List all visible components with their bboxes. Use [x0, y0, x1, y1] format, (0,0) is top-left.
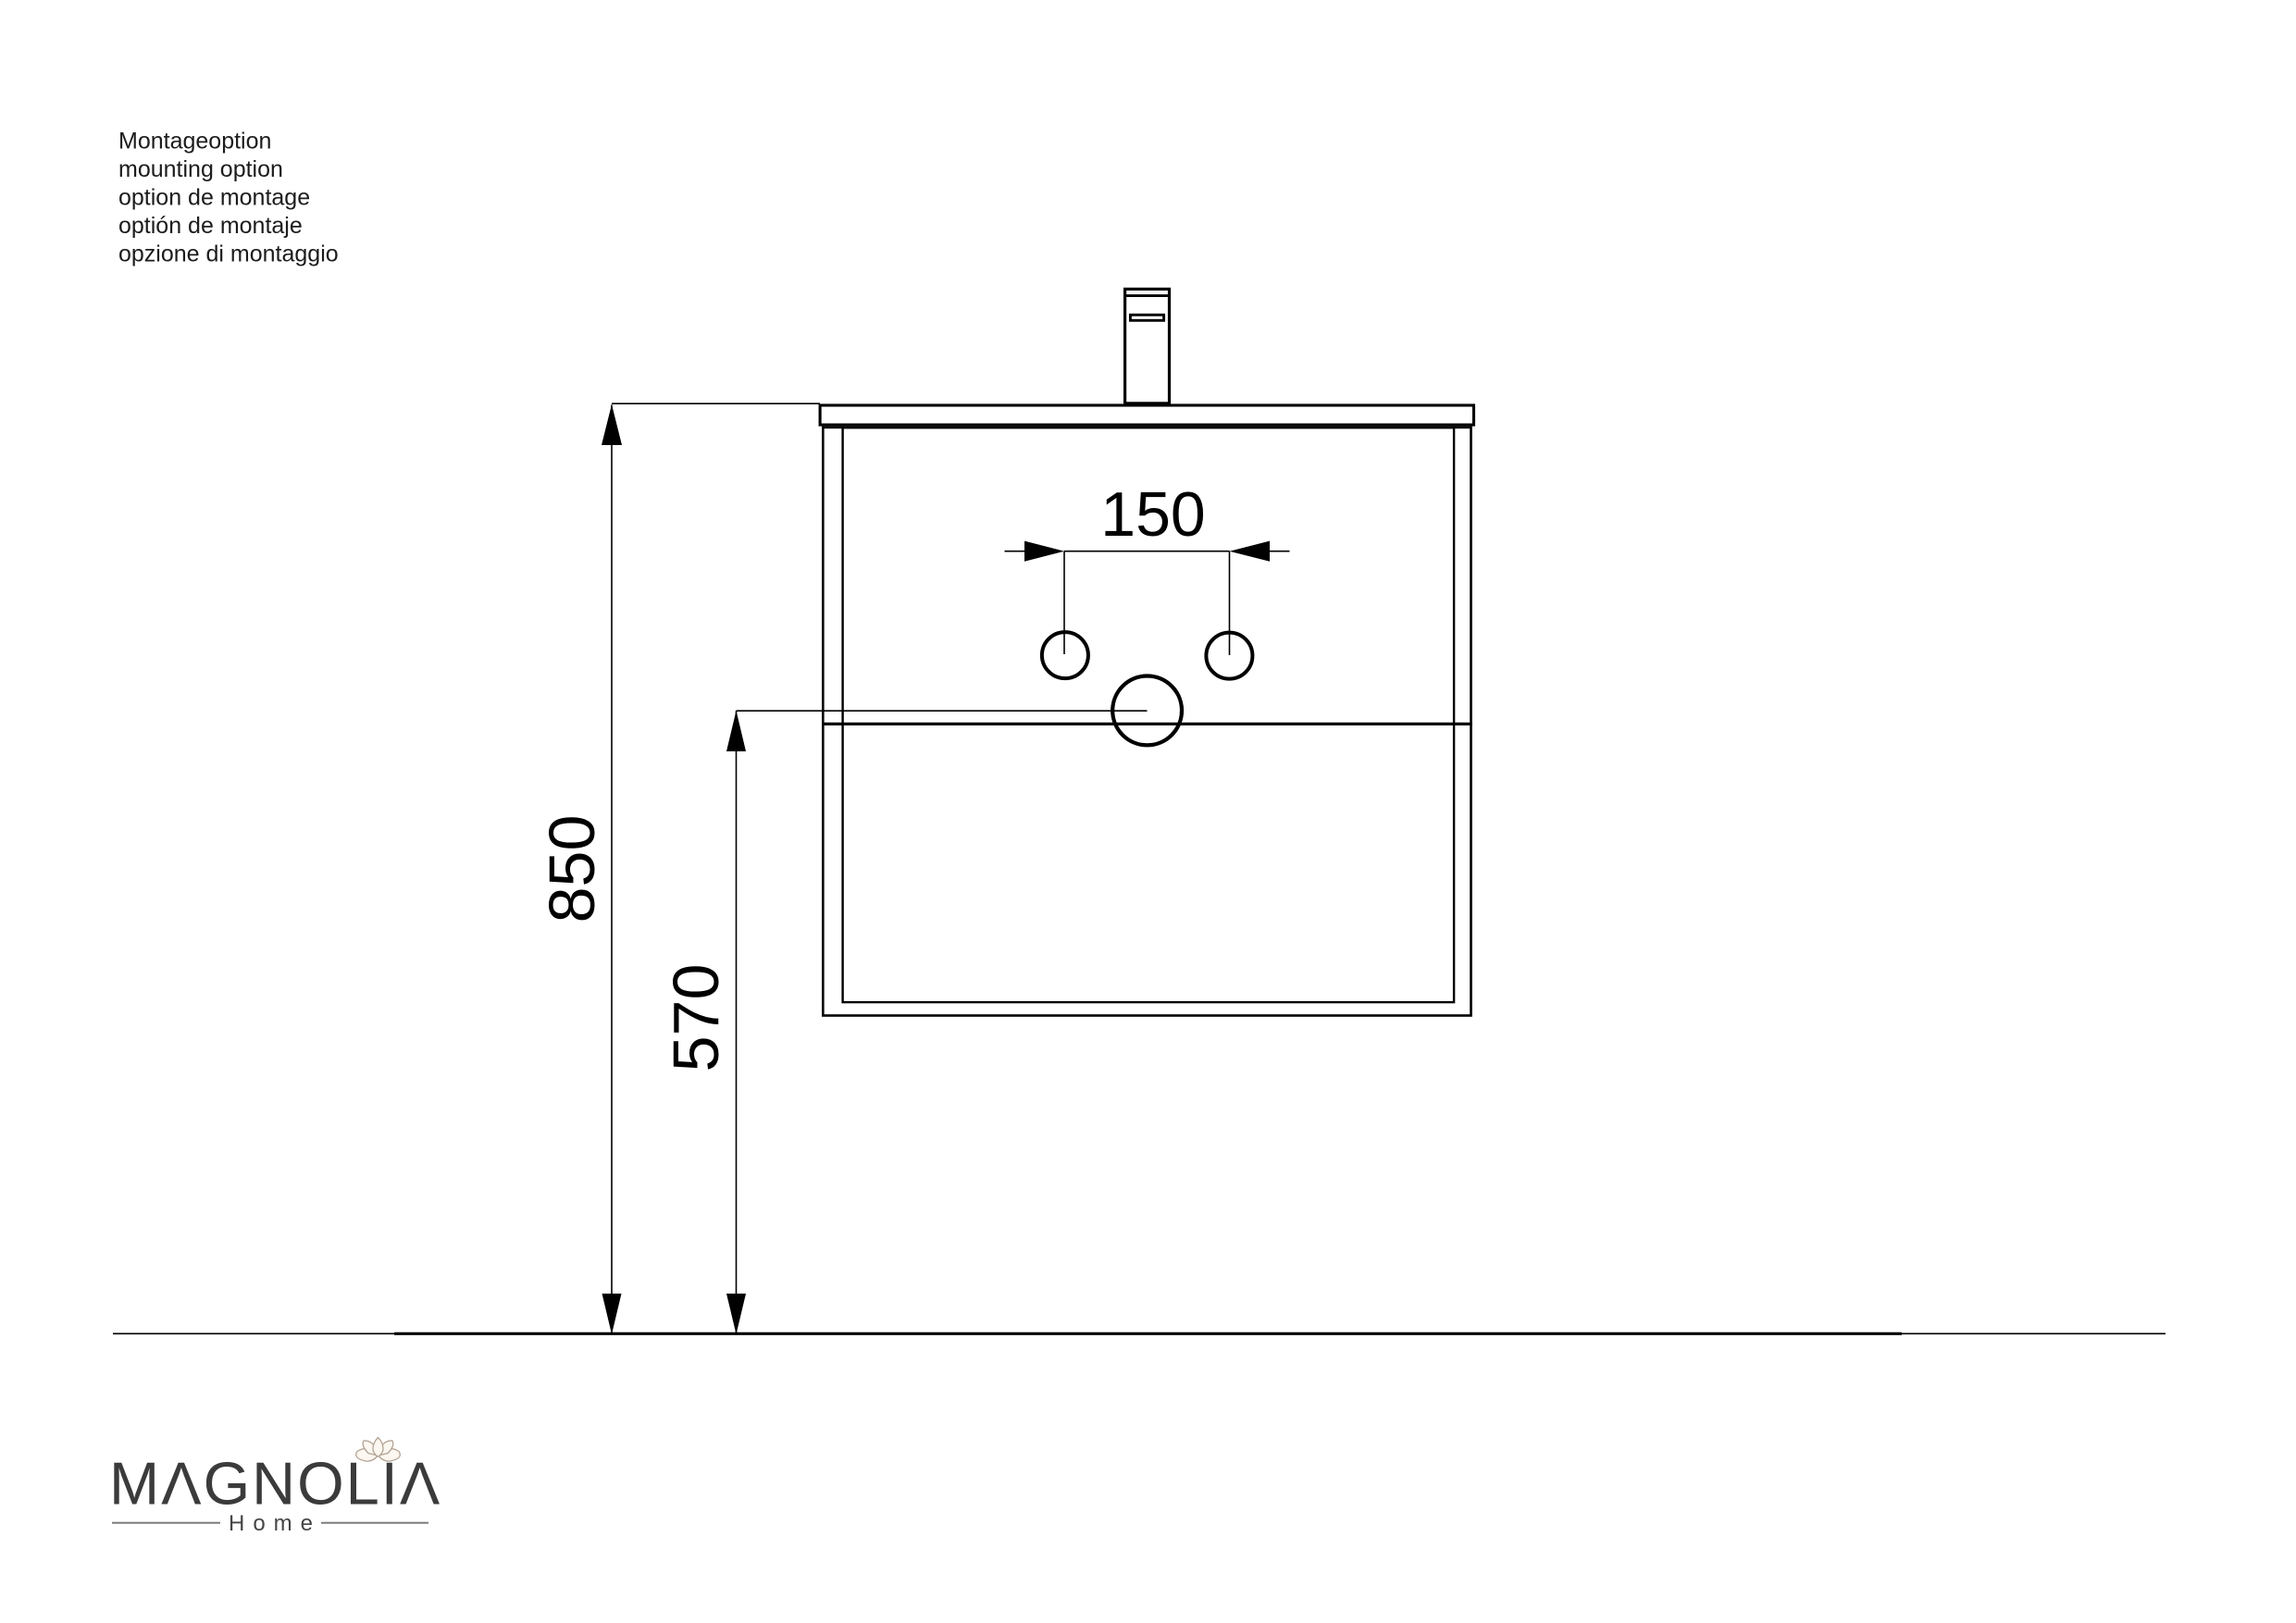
svg-text:Montageoption: Montageoption	[118, 129, 271, 155]
svg-text:mounting option: mounting option	[118, 156, 283, 182]
svg-text:MΛGNOLIΛ: MΛGNOLIΛ	[109, 1450, 441, 1518]
svg-text:optión de montaje: optión de montaje	[118, 213, 303, 239]
svg-text:opzione di montaggio: opzione di montaggio	[118, 242, 339, 267]
svg-text:Home: Home	[229, 1511, 321, 1536]
svg-text:option de montage: option de montage	[118, 185, 310, 211]
svg-text:150: 150	[1100, 479, 1205, 550]
svg-text:570: 570	[660, 964, 732, 1072]
svg-text:850: 850	[536, 815, 608, 923]
